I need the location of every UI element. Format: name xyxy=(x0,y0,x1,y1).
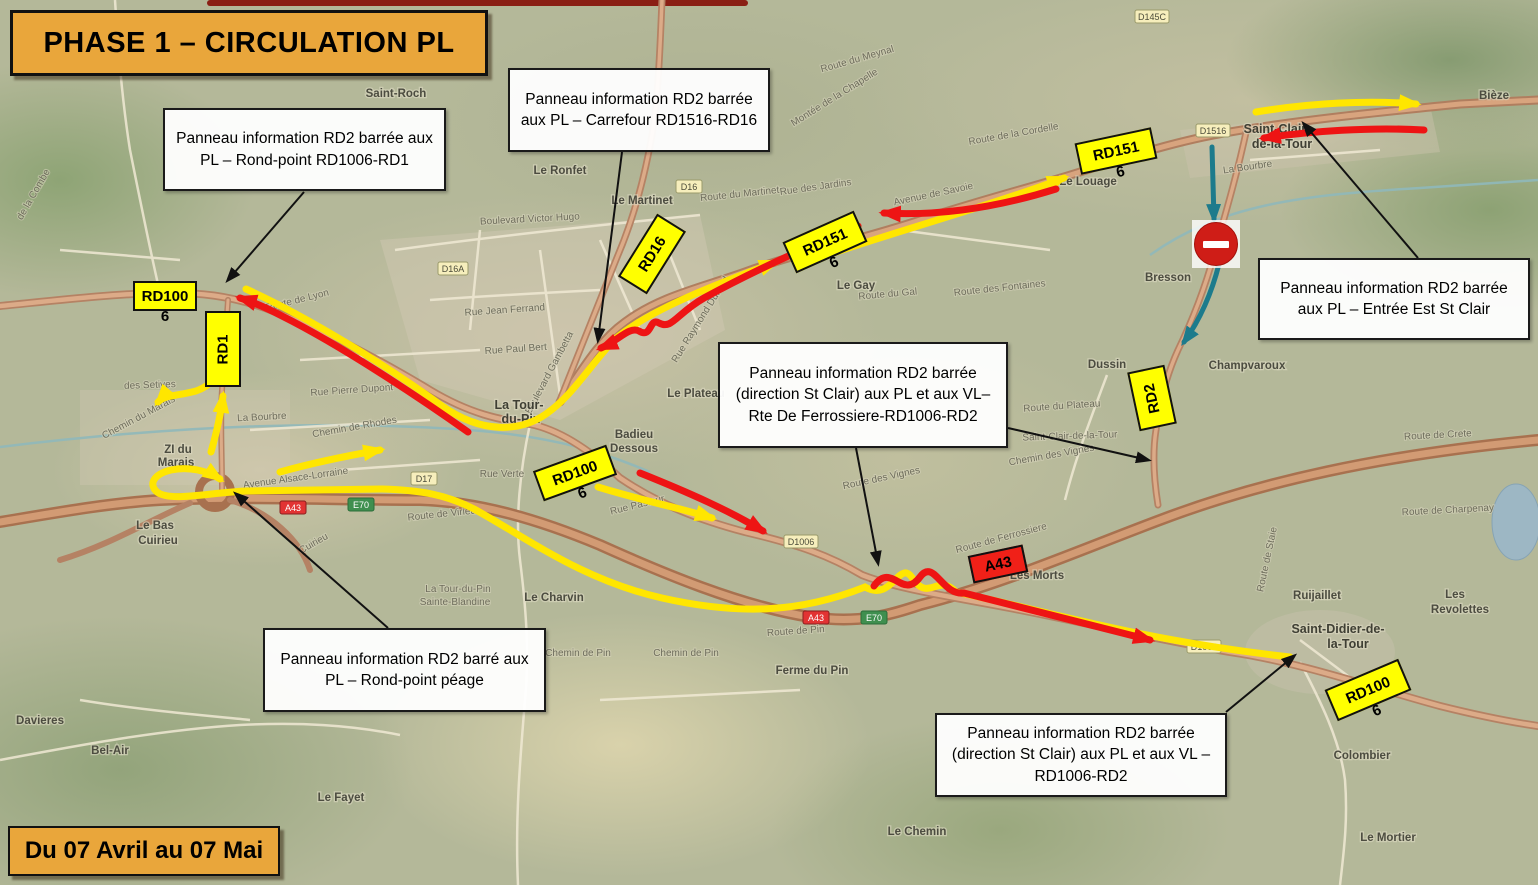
place-label: Le Chemin xyxy=(888,826,947,838)
shield-e70-west: E70 xyxy=(348,498,374,511)
callout-pointer-arrow xyxy=(236,494,388,628)
shield-d16: D16 xyxy=(676,180,702,193)
street-label: Route de la Cordelle xyxy=(968,121,1060,148)
shield-label: D16 xyxy=(681,182,698,192)
shield-label: E70 xyxy=(866,613,882,623)
street-label: Chemin des Vignes xyxy=(1008,443,1095,469)
no-entry-bar xyxy=(1203,241,1229,248)
place-label: Les xyxy=(1445,589,1465,601)
place-label: Le Fayet xyxy=(318,792,365,804)
shield-label: D17 xyxy=(416,474,433,484)
street-label: Route de Charpenay xyxy=(1401,503,1494,519)
place-label: Colombier xyxy=(1334,750,1391,762)
place-label: La Tour- xyxy=(494,398,543,412)
phase-title-text: PHASE 1 – CIRCULATION PL xyxy=(43,27,454,60)
callout-pointer-arrow xyxy=(856,448,878,563)
callout-text: Panneau information RD2 barrée aux PL – … xyxy=(520,89,758,132)
shield-label: D145C xyxy=(1138,12,1167,22)
shield-d1006-mid: D1006 xyxy=(784,535,818,548)
place-label: ZI du xyxy=(164,444,191,456)
road-label-text: RD2 xyxy=(1141,382,1164,415)
lake xyxy=(1492,484,1538,560)
callout-text: Panneau information RD2 barrée aux PL – … xyxy=(175,128,434,171)
shield-a43-west: A43 xyxy=(280,501,306,514)
no-entry-icon xyxy=(1192,220,1240,268)
shield-label: D1516 xyxy=(1200,126,1227,136)
shield-e70-mid: E70 xyxy=(861,611,887,624)
callout-rondpoint-peage: Panneau information RD2 barré aux PL – R… xyxy=(263,628,546,712)
place-label: Cuirieu xyxy=(138,535,178,547)
place-label: Bièze xyxy=(1479,90,1509,102)
place-label: Le Martinet xyxy=(611,195,673,207)
place-label: Ruijaillet xyxy=(1293,590,1341,602)
street-label: Route du Plateau xyxy=(1023,398,1101,414)
street-label: Route des Fontaines xyxy=(953,278,1046,299)
road-label-rd1006-west: RD100 6 xyxy=(133,281,197,311)
street-label: Sainte-Blandine xyxy=(420,597,491,608)
road-label-text: RD100 xyxy=(142,288,189,305)
place-label: Champvaroux xyxy=(1209,360,1286,372)
shield-label: D1006 xyxy=(788,537,815,547)
place-label: Revolettes xyxy=(1431,604,1489,616)
shield-label: D16A xyxy=(442,264,465,274)
place-label: Le Louage xyxy=(1059,176,1117,188)
road-label-text: A43 xyxy=(983,553,1013,575)
no-entry-disc xyxy=(1194,222,1238,266)
date-range-banner: Du 07 Avril au 07 Mai xyxy=(8,826,280,876)
place-label: Le Mortier xyxy=(1360,832,1416,844)
shield-label: A43 xyxy=(285,503,301,513)
street-label: Chemin de Pin xyxy=(545,648,611,659)
street-label: Rue Verte xyxy=(480,469,525,480)
street-label: La Tour-du-Pin xyxy=(425,584,490,595)
shield-label: E70 xyxy=(353,500,369,510)
callout-entree-est-st-clair: Panneau information RD2 barrée aux PL – … xyxy=(1258,258,1530,340)
place-label: Le Charvin xyxy=(524,592,583,604)
place-label: Le Gay xyxy=(837,280,876,292)
callout-text: Panneau information RD2 barrée aux PL – … xyxy=(1270,278,1518,321)
street-label: Rue Pierre Dupont xyxy=(310,382,394,399)
street-label: Rue des Jardins xyxy=(779,177,852,198)
place-label: Le Bas xyxy=(136,520,174,532)
callout-text: Panneau information RD2 barrée (directio… xyxy=(730,363,996,427)
slide: D145C D1516 D16A D16 D17 A43 E70 A43 E70… xyxy=(0,0,1538,885)
place-label: Badieu xyxy=(615,429,653,441)
place-label: Bel-Air xyxy=(91,745,129,757)
callout-pointer-arrow xyxy=(228,192,304,280)
place-label: Saint-Didier-de- xyxy=(1291,622,1384,636)
date-range-text: Du 07 Avril au 07 Mai xyxy=(25,837,263,865)
street-label: des Setives xyxy=(124,379,176,392)
callout-text: Panneau information RD2 barrée (directio… xyxy=(947,723,1215,787)
shield-d145c: D145C xyxy=(1135,10,1169,23)
road-label-suffix: 6 xyxy=(161,308,169,325)
street-label: de la Combe xyxy=(15,167,53,222)
callout-text: Panneau information RD2 barré aux PL – R… xyxy=(275,649,534,692)
place-label: Dessous xyxy=(610,443,658,455)
street-label: Chemin de Rhodes xyxy=(311,415,397,441)
callout-rte-de-ferrossiere: Panneau information RD2 barrée (directio… xyxy=(718,342,1008,448)
street-label: Route du Meynal xyxy=(819,44,895,75)
shield-d1516: D1516 xyxy=(1196,124,1230,137)
teal-arrow xyxy=(1212,147,1214,219)
street-label: Route de Crete xyxy=(1404,428,1473,443)
place-label: Davieres xyxy=(16,715,64,727)
callout-carrefour-rd1516-rd16: Panneau information RD2 barrée aux PL – … xyxy=(508,68,770,152)
phase-title-banner: PHASE 1 – CIRCULATION PL xyxy=(10,10,488,76)
place-label: Le Plateau xyxy=(667,388,725,400)
street-label: Route du Martinet xyxy=(700,185,780,204)
place-label: la-Tour xyxy=(1327,637,1369,651)
street-label: Route de Pin xyxy=(767,624,825,639)
street-label: Route de Staie xyxy=(1255,526,1280,593)
street-label: Montée de la Chapelle xyxy=(789,66,880,129)
place-label: Saint-Roch xyxy=(366,88,427,100)
callout-rondpoint-rd1006-rd1: Panneau information RD2 barrée aux PL – … xyxy=(163,108,446,191)
place-label: Dussin xyxy=(1088,359,1126,371)
street-label: Boulevard Victor Hugo xyxy=(480,211,581,227)
callout-rd1006-rd2: Panneau information RD2 barrée (directio… xyxy=(935,713,1227,797)
place-label: Ferme du Pin xyxy=(776,665,849,677)
street-label: Chemin de Pin xyxy=(653,648,719,659)
place-label: Le Ronfet xyxy=(533,165,586,177)
shield-d16a: D16A xyxy=(438,262,468,275)
place-label: Bresson xyxy=(1145,272,1191,284)
shield-d17: D17 xyxy=(411,472,437,485)
shield-label: A43 xyxy=(808,613,824,623)
road-label-text: RD1 xyxy=(214,334,231,364)
road-label-text: RD151 xyxy=(1091,138,1140,164)
road-label-rd1: RD1 xyxy=(205,311,241,387)
shield-a43-mid: A43 xyxy=(803,611,829,624)
street-label: Route des Vignes xyxy=(842,465,921,492)
